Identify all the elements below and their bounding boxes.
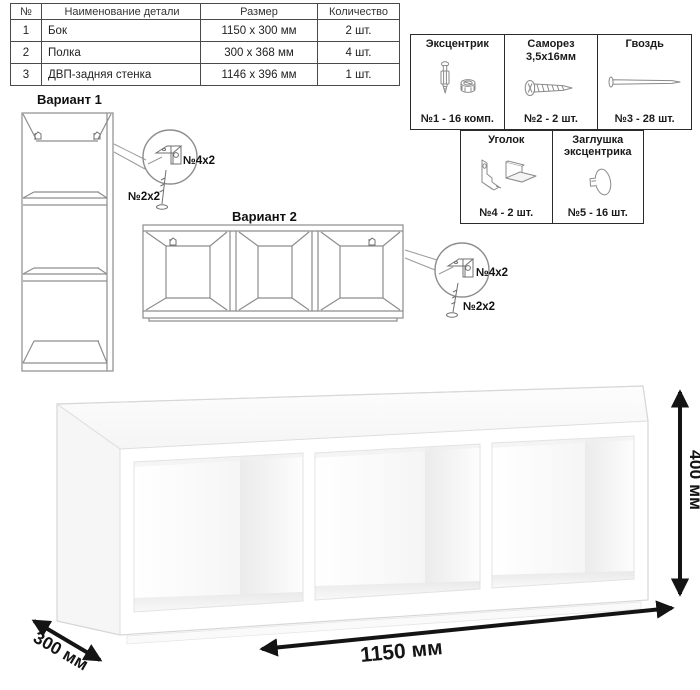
hardware-title-line1: Гвоздь [625, 38, 663, 50]
variant2-drawing: №4x2 №2x2 [130, 200, 525, 340]
hardware-count: №2 - 2 шт. [524, 113, 578, 125]
hardware-title-line1: Заглушка [572, 134, 623, 146]
hardware-count: №3 - 28 шт. [615, 113, 675, 125]
variant2-bracket-label: №4x2 [476, 267, 508, 279]
variant1-shelf-outline [22, 113, 113, 371]
shelf-3d-render: 1150 мм 300 мм 400 мм [0, 378, 700, 690]
parts-table-header-row: № Наименование детали Размер Количество [11, 4, 400, 20]
table-row: 1 Бок 1150 x 300 мм 2 шт. [11, 20, 400, 42]
cell-qty: 4 шт. [318, 42, 400, 64]
corner-bracket-icon [470, 146, 542, 206]
hardware-title: Эксцентрик [426, 38, 489, 51]
hardware-count: №1 - 16 комп. [421, 113, 494, 125]
hardware-cell-screw: Саморез 3,5x16мм [504, 35, 598, 129]
parts-table: № Наименование детали Размер Количество … [10, 3, 400, 86]
hardware-title-line1: Саморез [527, 38, 574, 50]
table-row: 2 Полка 300 x 368 мм 4 шт. [11, 42, 400, 64]
assembly-instruction-page: № Наименование детали Размер Количество … [0, 0, 700, 690]
header-size: Размер [201, 4, 318, 20]
header-name: Наименование детали [42, 4, 201, 20]
cam-bolt-icon [425, 51, 489, 113]
variant2-bracket-symbols [170, 238, 375, 246]
cell-size: 1146 x 396 мм [201, 64, 318, 86]
variant2-shelf-outline [143, 225, 403, 321]
depth-dimension-label: 300 мм [30, 627, 92, 674]
hardware-cell-cap: Заглушка эксцентрика №5 - 16 шт. [552, 131, 644, 223]
width-dimension-label: 1150 мм [359, 636, 443, 667]
variant2-screw-label: №2x2 [463, 301, 495, 313]
screw-detail-icon [447, 283, 459, 317]
variant1-bracket-label: №4x2 [183, 155, 215, 167]
cell-name: Бок [42, 20, 201, 42]
cell-qty: 2 шт. [318, 20, 400, 42]
hardware-title: Саморез 3,5x16мм [526, 38, 576, 63]
cell-size: 300 x 368 мм [201, 42, 318, 64]
header-qty: Количество [318, 4, 400, 20]
cell-qty: 1 шт. [318, 64, 400, 86]
cell-name: Полка [42, 42, 201, 64]
hardware-title-line1: Эксцентрик [426, 38, 489, 50]
hardware-title-line2: 3,5x16мм [526, 51, 576, 63]
cell-name: ДВП-задняя стенка [42, 64, 201, 86]
hardware-title: Заглушка эксцентрика [564, 134, 632, 159]
variant1-bracket-symbols [35, 132, 100, 140]
hardware-title: Уголок [488, 134, 524, 147]
variant2-callout-leader [405, 250, 453, 274]
bracket-detail-icon [156, 146, 181, 164]
hardware-title-line2: эксцентрика [564, 146, 632, 158]
hardware-title-line1: Уголок [488, 134, 524, 146]
screw-icon [519, 63, 583, 113]
cell-num: 3 [11, 64, 42, 86]
header-num: № [11, 4, 42, 20]
variant1-title: Вариант 1 [37, 92, 102, 107]
table-row: 3 ДВП-задняя стенка 1146 x 396 мм 1 шт. [11, 64, 400, 86]
hardware-title: Гвоздь [625, 38, 663, 51]
nail-icon [604, 51, 686, 113]
cell-num: 1 [11, 20, 42, 42]
variant1-callout-leader [114, 144, 162, 169]
cell-num: 2 [11, 42, 42, 64]
hardware-panel-top-row: Эксцентрик [410, 34, 692, 130]
height-dimension-label: 400 мм [686, 450, 700, 510]
hardware-cell-nail: Гвоздь №3 - 28 шт. [597, 35, 691, 129]
hardware-cell-eccentric: Эксцентрик [411, 35, 504, 129]
cam-cap-icon [573, 159, 623, 207]
cell-size: 1150 x 300 мм [201, 20, 318, 42]
hardware-count: №5 - 16 шт. [568, 207, 628, 219]
